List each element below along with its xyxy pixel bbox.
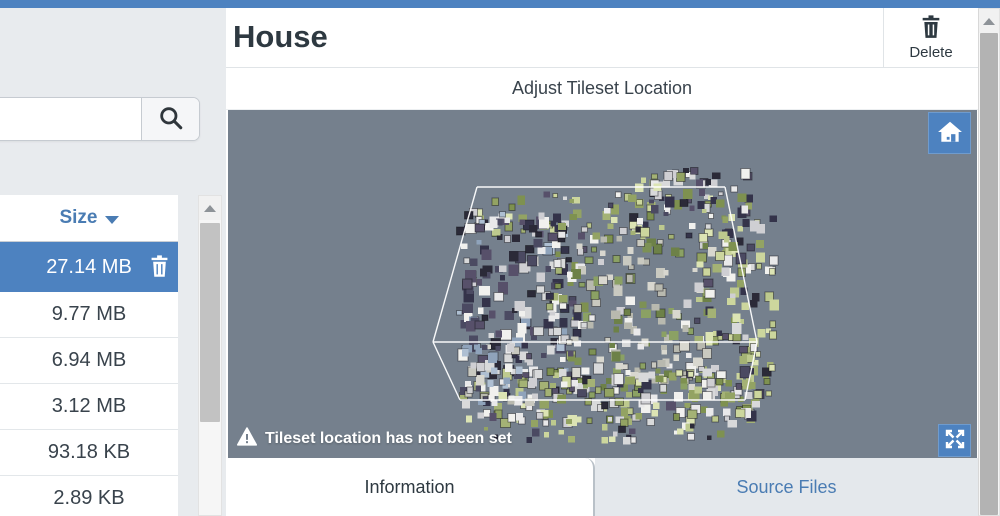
search-input[interactable] [0, 98, 135, 140]
list-item[interactable]: 93.18 KB [0, 430, 178, 476]
tileset-location-warning: Tileset location has not been set [237, 427, 512, 451]
list-item[interactable]: 6.94 MB [0, 338, 178, 384]
file-size-value: 93.18 KB [48, 441, 130, 464]
top-accent-bar [0, 0, 1000, 8]
main-panel: House Delete Adjust Tileset Location [226, 8, 978, 516]
section-title: Adjust Tileset Location [512, 78, 692, 99]
sidebar: Size 27.14 MB 9.77 MB 6.94 MB [0, 8, 226, 516]
file-size-value: 3.12 MB [52, 395, 126, 418]
file-size-value: 6.94 MB [52, 349, 126, 372]
list-scrollbar-thumb[interactable] [200, 223, 220, 422]
adjust-tileset-location-header: Adjust Tileset Location [226, 68, 978, 110]
size-header-label: Size [59, 207, 97, 229]
tab-information[interactable]: Information [226, 458, 595, 516]
app-window: Size 27.14 MB 9.77 MB 6.94 MB [0, 0, 1000, 516]
list-scrollbar[interactable] [198, 195, 222, 516]
list-item[interactable]: 3.12 MB [0, 384, 178, 430]
page-scrollbar[interactable] [978, 8, 1000, 516]
list-item[interactable]: 9.77 MB [0, 292, 178, 338]
tab-information-label: Information [364, 477, 454, 498]
search-button[interactable] [141, 98, 199, 140]
delete-button-label: Delete [909, 44, 952, 61]
file-size-value: 9.77 MB [52, 303, 126, 326]
file-size-value: 27.14 MB [46, 256, 132, 279]
fullscreen-button[interactable] [938, 424, 971, 457]
search-icon [158, 105, 184, 134]
tileset-3d-viewer[interactable]: Tileset location has not been set [228, 110, 977, 458]
warning-text: Tileset location has not been set [265, 430, 512, 448]
asset-size-list: Size 27.14 MB 9.77 MB 6.94 MB [0, 195, 178, 516]
warning-icon [237, 427, 257, 451]
page-scrollbar-thumb[interactable] [980, 33, 998, 515]
search-box [0, 97, 200, 141]
tab-source-files[interactable]: Source Files [595, 458, 978, 516]
list-item-selected[interactable]: 27.14 MB [0, 242, 178, 292]
camera-home-button[interactable] [928, 112, 971, 154]
trash-icon[interactable] [150, 255, 169, 284]
list-item[interactable]: 2.89 KB [0, 476, 178, 516]
file-size-value: 2.89 KB [53, 487, 124, 510]
sort-caret-down-icon [105, 216, 119, 224]
trash-icon [921, 15, 941, 42]
home-icon [937, 119, 963, 148]
detail-tabs: Information Source Files [226, 458, 978, 516]
tileset-point-cloud [228, 110, 977, 458]
expand-icon [943, 427, 967, 454]
size-column-header[interactable]: Size [0, 195, 178, 242]
page-title: House [233, 19, 328, 55]
tab-source-files-label: Source Files [736, 477, 836, 498]
scroll-up-icon[interactable] [199, 196, 221, 220]
delete-button[interactable]: Delete [883, 8, 978, 67]
asset-header: House Delete [226, 8, 978, 68]
scroll-up-icon[interactable] [979, 9, 999, 33]
